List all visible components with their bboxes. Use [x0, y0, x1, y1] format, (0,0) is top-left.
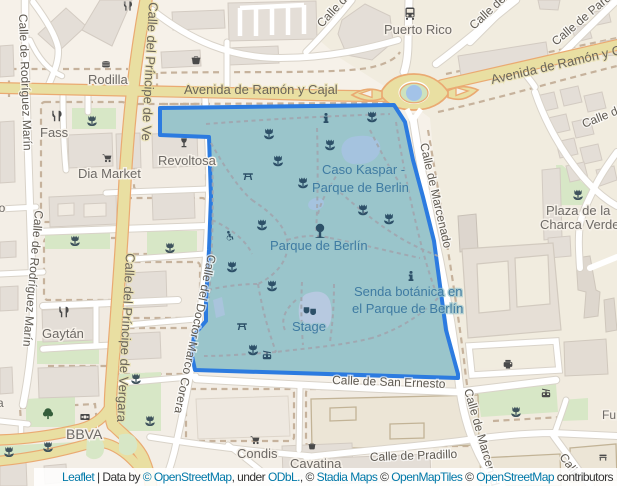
svg-text:Parque de Berlin: Parque de Berlin [312, 180, 409, 195]
svg-text:io: io [0, 201, 6, 215]
svg-text:Dia Market: Dia Market [78, 166, 141, 181]
svg-text:Puerto Rico: Puerto Rico [384, 22, 452, 37]
svg-text:Fu: Fu [602, 408, 616, 422]
svg-text:Gaytán: Gaytán [42, 326, 84, 341]
svg-text:a: a [0, 396, 4, 410]
svg-text:BBVA: BBVA [66, 426, 103, 442]
svg-text:el Parque de Berlín: el Parque de Berlín [352, 301, 463, 316]
svg-text:Parque de Berlín: Parque de Berlín [270, 238, 368, 253]
svg-text:Rodilla: Rodilla [88, 72, 129, 87]
svg-text:Stage: Stage [292, 319, 326, 334]
svg-text:Charca Verde: Charca Verde [540, 217, 617, 232]
svg-text:Fass: Fass [40, 125, 69, 140]
svg-text:Condis: Condis [237, 446, 278, 461]
svg-text:Caso Kaspar -: Caso Kaspar - [322, 162, 405, 177]
svg-text:Plaza de la: Plaza de la [546, 203, 611, 218]
svg-text:Senda botánica en: Senda botánica en [354, 284, 462, 299]
svg-text:Revoltosa: Revoltosa [158, 153, 217, 168]
svg-text:Avenida de Ramón y Cajal: Avenida de Ramón y Cajal [184, 82, 338, 97]
